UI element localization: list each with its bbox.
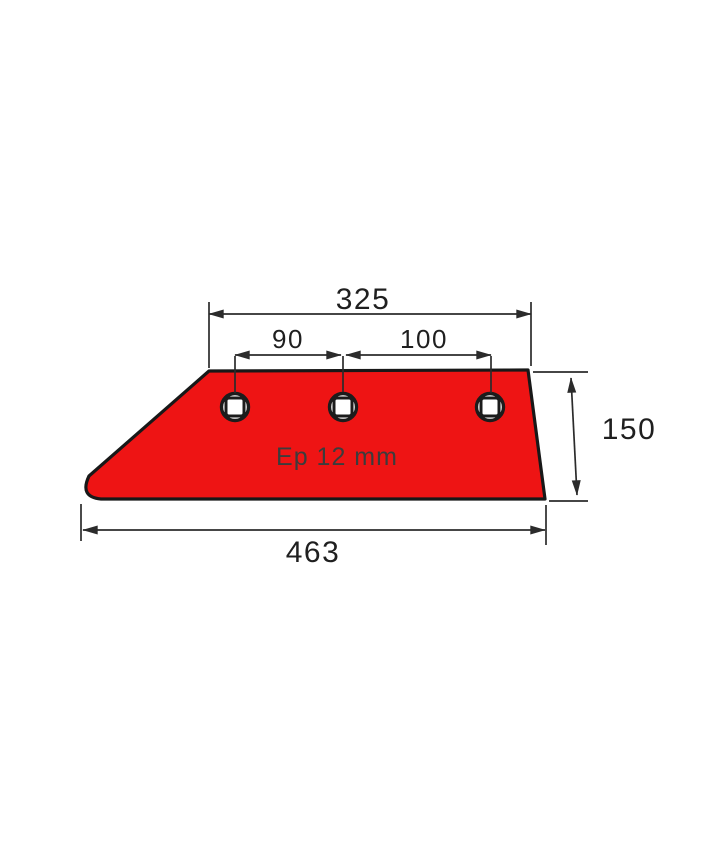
thickness-label: Ep 12 mm <box>276 443 398 471</box>
dim-100-label: 100 <box>400 324 448 354</box>
bolt-hole-square <box>226 398 244 416</box>
dim-90-label: 90 <box>272 324 304 354</box>
plow-share-blade <box>86 370 545 499</box>
dim-325-label: 325 <box>336 283 391 316</box>
dim-150-line <box>571 378 577 495</box>
drawing-canvas: 325 90 100 150 463 Ep 12 mm <box>0 0 724 856</box>
bolt-hole-left <box>222 394 249 421</box>
bolt-hole-square <box>481 398 499 416</box>
dim-150-label: 150 <box>602 413 657 446</box>
dim-463-label: 463 <box>286 536 341 569</box>
technical-drawing: 325 90 100 150 463 Ep 12 mm <box>0 0 724 856</box>
bolt-hole-square <box>334 398 352 416</box>
bolt-hole-middle <box>330 394 357 421</box>
bolt-hole-right <box>477 394 504 421</box>
